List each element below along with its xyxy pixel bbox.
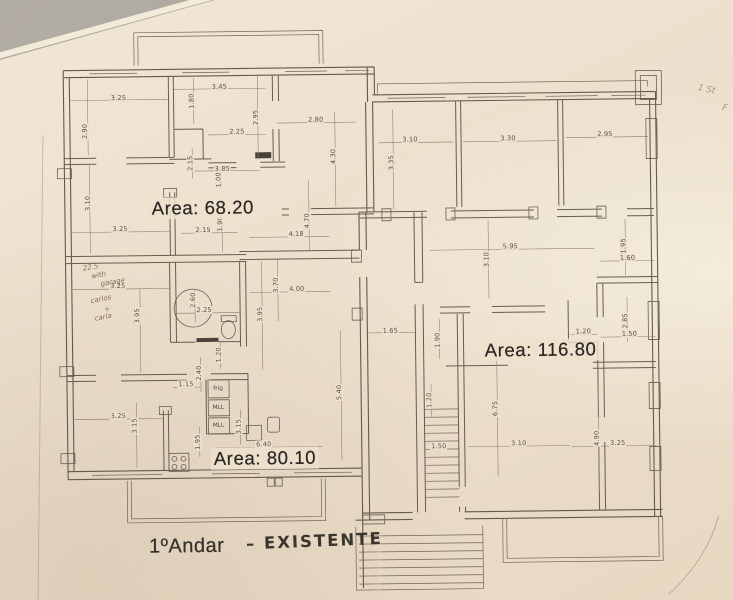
appliance-label: frig bbox=[213, 386, 223, 392]
dimension-label: 2.95 bbox=[596, 130, 613, 138]
dimension-label: 3.25 bbox=[110, 94, 127, 102]
floor-plan: 3.252.903.451.802.952.252.804.302.153.85… bbox=[0, 0, 733, 600]
dimension-label: 3.25 bbox=[110, 412, 127, 420]
dimension-label: 2.90 bbox=[81, 123, 89, 140]
dimension-label: 4.70 bbox=[303, 212, 311, 229]
toilet-bowl bbox=[221, 321, 235, 339]
dimension-label: 3.10 bbox=[482, 251, 490, 268]
dimension-label: 1.00 bbox=[214, 171, 222, 188]
dimension-label: 3.15 bbox=[234, 418, 242, 435]
dimension-label: 3.10 bbox=[510, 439, 527, 447]
dimension-label: 1.20 bbox=[215, 346, 223, 363]
dimension-lines bbox=[70, 70, 657, 498]
appliance-label: MLL bbox=[213, 423, 225, 429]
dimension-label: 1.20 bbox=[425, 392, 433, 409]
dimension-label: 3.45 bbox=[211, 83, 228, 91]
dimension-label: 4.00 bbox=[288, 285, 305, 293]
paper-curl-line bbox=[668, 516, 720, 595]
dimension-label: 3.35 bbox=[387, 154, 395, 171]
area-label: Area: 80.10 bbox=[211, 447, 320, 470]
dimension-label: 1.15 bbox=[177, 380, 194, 388]
dimension-label: 3.25 bbox=[609, 439, 626, 447]
dimension-label: 2.25 bbox=[228, 127, 245, 135]
dimension-label: 1.65 bbox=[382, 327, 399, 335]
dimension-label: 2.85 bbox=[621, 312, 629, 329]
stove bbox=[169, 453, 189, 471]
scanned-floor-plan-photo: 3.252.903.451.802.952.252.804.302.153.85… bbox=[0, 0, 733, 600]
dimension-label: 1.95 bbox=[619, 237, 627, 254]
dimension-label: 1.20 bbox=[575, 327, 592, 335]
dimension-label: 6.75 bbox=[491, 400, 499, 417]
dimension-label: 4.18 bbox=[287, 230, 304, 238]
dimension-label: 2.15 bbox=[186, 154, 194, 171]
dimension-label: 5.40 bbox=[335, 384, 343, 401]
dimension-label: 5.95 bbox=[502, 242, 519, 250]
dimension-label: 1.60 bbox=[619, 254, 636, 262]
dimension-label: 2.95 bbox=[252, 109, 260, 126]
outer-walls bbox=[63, 63, 663, 591]
dimension-label: 1.50 bbox=[430, 442, 447, 450]
dimension-label: 1.90 bbox=[433, 331, 441, 348]
area-label: Area: 116.80 bbox=[482, 338, 600, 361]
area-label: Area: 68.20 bbox=[149, 196, 258, 219]
dimension-label: 3.15 bbox=[130, 417, 138, 434]
drawing-title: 1ºAndar bbox=[149, 535, 225, 559]
dimension-label: 2.80 bbox=[307, 116, 324, 124]
dimension-label: 3.25 bbox=[111, 225, 128, 233]
dimension-label: 3.10 bbox=[401, 135, 418, 143]
dimension-label: 2.25 bbox=[195, 306, 212, 314]
dimension-label: 3.10 bbox=[84, 195, 92, 212]
dimension-label: 2.15 bbox=[194, 226, 211, 234]
dimension-label: 3.30 bbox=[499, 134, 516, 142]
dimension-label: 2.40 bbox=[195, 364, 203, 381]
dimension-label: 4.90 bbox=[593, 430, 601, 447]
appliance-label: MLL bbox=[213, 405, 225, 411]
dimension-label: 1.95 bbox=[194, 433, 202, 450]
dimension-label: 4.30 bbox=[329, 148, 337, 165]
dimension-label: 1.80 bbox=[187, 92, 195, 109]
dimension-label: 1.50 bbox=[621, 330, 638, 338]
dimension-label: 3.95 bbox=[256, 306, 264, 323]
dimension-label: 3.70 bbox=[272, 276, 280, 293]
dimension-label: 3.95 bbox=[133, 307, 141, 324]
